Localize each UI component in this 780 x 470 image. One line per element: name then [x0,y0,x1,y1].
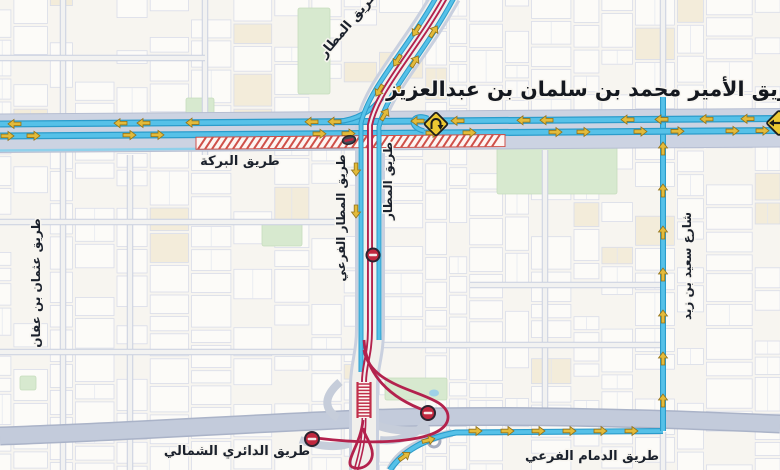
closed-segment-railhatch [356,382,372,418]
label-othman-bin-affan-road: طريق عثمان بن عفان [29,218,43,347]
no-entry-icon [421,406,435,420]
map-screenshot: طريق الأمير محمد بن سلمان بن عبدالعزيز ط… [0,0,780,470]
label-northern-ring-road: طريق الدائري الشمالي [164,444,310,459]
label-prince-mbs-road: طريق الأمير محمد بن سلمان بن عبدالعزيز [385,75,780,101]
map-canvas: طريق الأمير محمد بن سلمان بن عبدالعزيز ط… [0,0,780,470]
label-airport-road: طريق المطار [381,142,395,221]
label-airport-side-road: طريق المطار الفرعي [334,154,348,281]
label-al-baraka-road: طريق البركة [200,154,280,169]
map-geometry [0,0,780,470]
no-entry-icon [367,249,380,262]
label-dammam-side-road: طريق الدمام الفرعي [525,449,659,464]
label-saeed-bin-zaid-street: شارع سعيد بن زيد [680,212,694,320]
